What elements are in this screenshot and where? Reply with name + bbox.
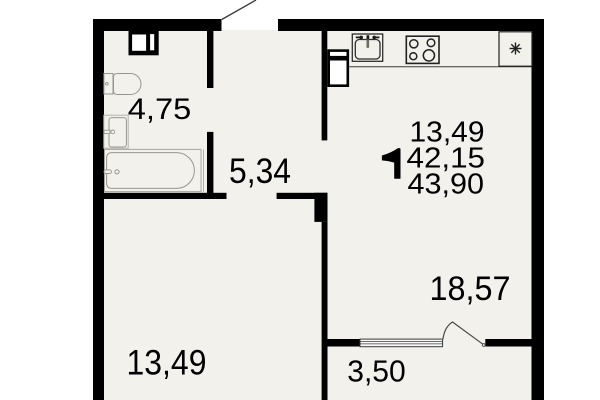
svg-text:18,57: 18,57 [430, 270, 511, 308]
svg-text:4,75: 4,75 [128, 93, 192, 126]
svg-text:43,90: 43,90 [408, 168, 485, 200]
svg-text:5,34: 5,34 [229, 152, 291, 191]
svg-text:13,49: 13,49 [127, 344, 207, 383]
svg-text:3,50: 3,50 [347, 355, 406, 389]
